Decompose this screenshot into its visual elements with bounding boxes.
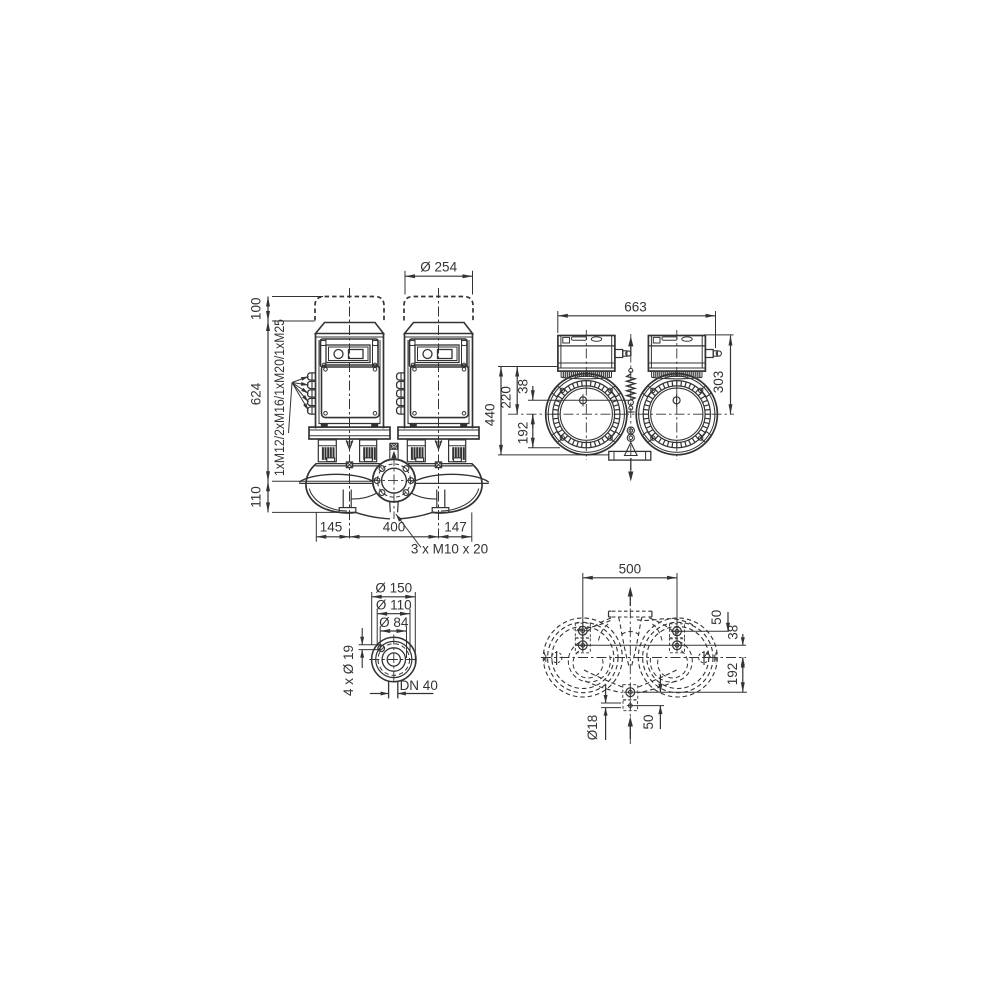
svg-text:100: 100	[249, 298, 264, 321]
svg-text:4 x Ø 19: 4 x Ø 19	[341, 645, 356, 696]
svg-text:Ø 254: Ø 254	[420, 260, 457, 275]
svg-text:3 x M10 x 20: 3 x M10 x 20	[411, 542, 488, 557]
svg-text:38: 38	[515, 379, 530, 394]
svg-text:Ø 84: Ø 84	[379, 615, 409, 630]
svg-text:192: 192	[725, 663, 740, 686]
svg-text:220: 220	[499, 386, 514, 409]
svg-text:DN 40: DN 40	[400, 678, 438, 693]
svg-text:624: 624	[249, 382, 264, 405]
svg-text:440: 440	[483, 404, 498, 427]
svg-text:38: 38	[725, 625, 740, 640]
svg-text:50: 50	[709, 610, 724, 625]
svg-text:110: 110	[249, 486, 264, 508]
svg-text:50: 50	[641, 714, 656, 729]
svg-text:303: 303	[711, 371, 726, 394]
svg-text:Ø18: Ø18	[585, 715, 600, 741]
svg-text:663: 663	[624, 300, 647, 315]
svg-text:192: 192	[515, 422, 530, 445]
svg-text:145: 145	[320, 520, 343, 535]
svg-text:Ø 150: Ø 150	[375, 580, 412, 595]
svg-text:500: 500	[619, 562, 642, 577]
svg-text:147: 147	[444, 520, 467, 535]
svg-text:1xM12/2xM16/1xM20/1xM25: 1xM12/2xM16/1xM20/1xM25	[271, 319, 287, 476]
svg-text:Ø 110: Ø 110	[376, 597, 412, 612]
